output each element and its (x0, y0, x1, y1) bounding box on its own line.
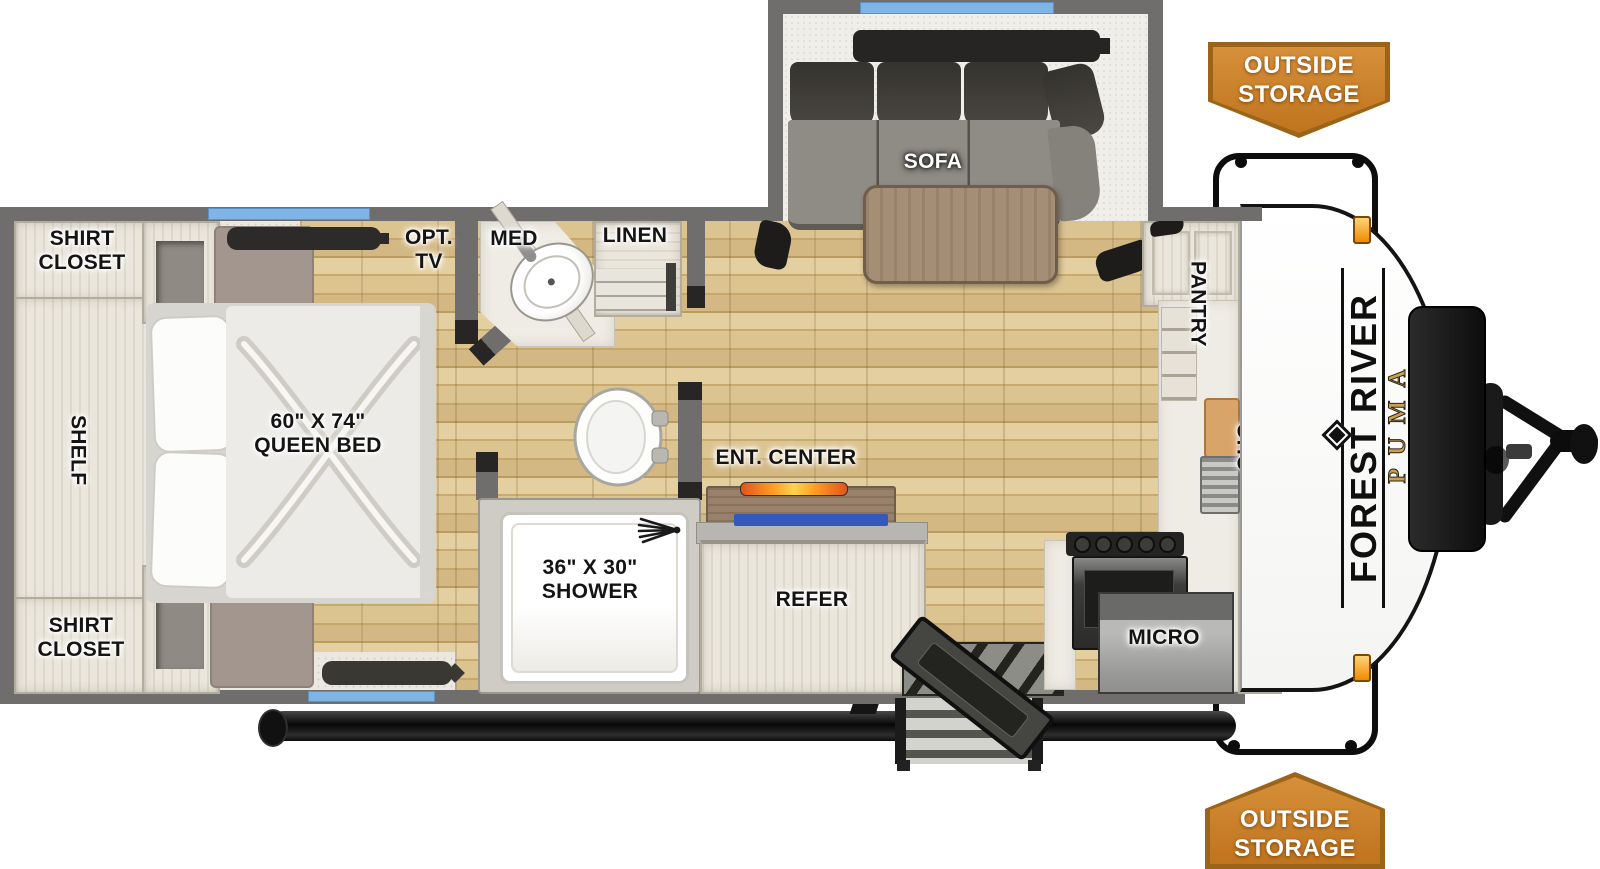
shelf-label: SHELF (66, 390, 90, 510)
slideout-tv-mount (1098, 38, 1110, 54)
bench-shelf-opening (156, 241, 204, 307)
outside-storage-badge-bottom: OUTSIDE STORAGE (1205, 772, 1385, 869)
step-foot (897, 760, 910, 771)
stove-knob (1095, 536, 1112, 553)
stove-knob (1074, 536, 1091, 553)
slideout-tv-bar (853, 30, 1100, 62)
slideout-wall-left (768, 0, 783, 221)
marker-light (1353, 654, 1371, 682)
bedroom-window-top (208, 208, 370, 220)
shirt-closet-top-label: SHIRT CLOSET (20, 227, 144, 274)
wall-left (0, 207, 14, 704)
awning-tube (268, 711, 1236, 741)
linen-side-shadow (666, 263, 676, 311)
awning-end-cap (258, 709, 288, 747)
outside-storage-badge-top: OUTSIDE STORAGE (1208, 42, 1390, 138)
tv-bar-bottom (322, 661, 452, 685)
linen-label: LINEN (596, 224, 674, 248)
ent-center-tv-strip (734, 514, 888, 526)
slideout-window (860, 2, 1054, 14)
queen-bed-label: 60" X 74" QUEEN BED (228, 410, 408, 457)
wall-end-cap (678, 382, 702, 400)
frame-bolt (1228, 740, 1240, 752)
frame-bolt (1345, 740, 1357, 752)
fireplace-flame (740, 482, 848, 496)
pantry-door-panel (1152, 231, 1190, 295)
frame-bolt (1235, 156, 1247, 168)
refer-label: REFER (766, 588, 858, 612)
bedroom-window-bottom (308, 691, 435, 702)
linen-drawers (596, 269, 676, 311)
outside-storage-bottom-label: OUTSIDE STORAGE (1205, 806, 1385, 864)
shower-head-icon (635, 516, 681, 544)
toilet (568, 385, 678, 490)
opt-tv-label: OPT. TV (392, 226, 466, 273)
floorplan: SHIRT CLOSET SHELF SHIRT CLOSET 60" X 74… (0, 0, 1600, 869)
stove-knob (1159, 536, 1176, 553)
slideout-wall-right (1148, 0, 1163, 221)
outside-storage-top-label: OUTSIDE STORAGE (1208, 52, 1390, 110)
wall-top-right (1148, 207, 1262, 221)
stove-knob (1116, 536, 1133, 553)
wall-end-cap (455, 320, 478, 344)
bed-pillow (150, 451, 235, 590)
sofa-label: SOFA (878, 150, 988, 174)
rock-guard (1408, 306, 1486, 552)
wall-end-cap (476, 452, 498, 472)
sofa-back-cushion (790, 62, 874, 128)
refrigerator (700, 540, 926, 694)
marker-light (1353, 216, 1371, 244)
frame-bolt (1352, 156, 1364, 168)
sofa-back-cushion (964, 62, 1048, 128)
bed-pillow (150, 315, 235, 454)
ent-center-label: ENT. CENTER (710, 446, 862, 470)
stove-knob-rail (1066, 532, 1184, 556)
pantry-label: PANTRY (1186, 246, 1210, 361)
micro-label: MICRO (1116, 626, 1212, 650)
step-foot (1028, 760, 1041, 771)
wall-end-cap (687, 286, 705, 308)
tv-bar-top-mount (379, 233, 389, 244)
shirt-closet-bottom-label: SHIRT CLOSET (18, 614, 144, 661)
mattress-edge (420, 306, 432, 598)
shower-label: 36" X 30" SHOWER (505, 556, 675, 603)
sofa-back-cushion (877, 62, 961, 128)
med-cabinet-label: MED (486, 227, 542, 251)
tv-bar-top (227, 227, 381, 250)
wall-top-left (0, 207, 768, 221)
stove-knob (1138, 536, 1155, 553)
dinette-table (863, 185, 1058, 284)
